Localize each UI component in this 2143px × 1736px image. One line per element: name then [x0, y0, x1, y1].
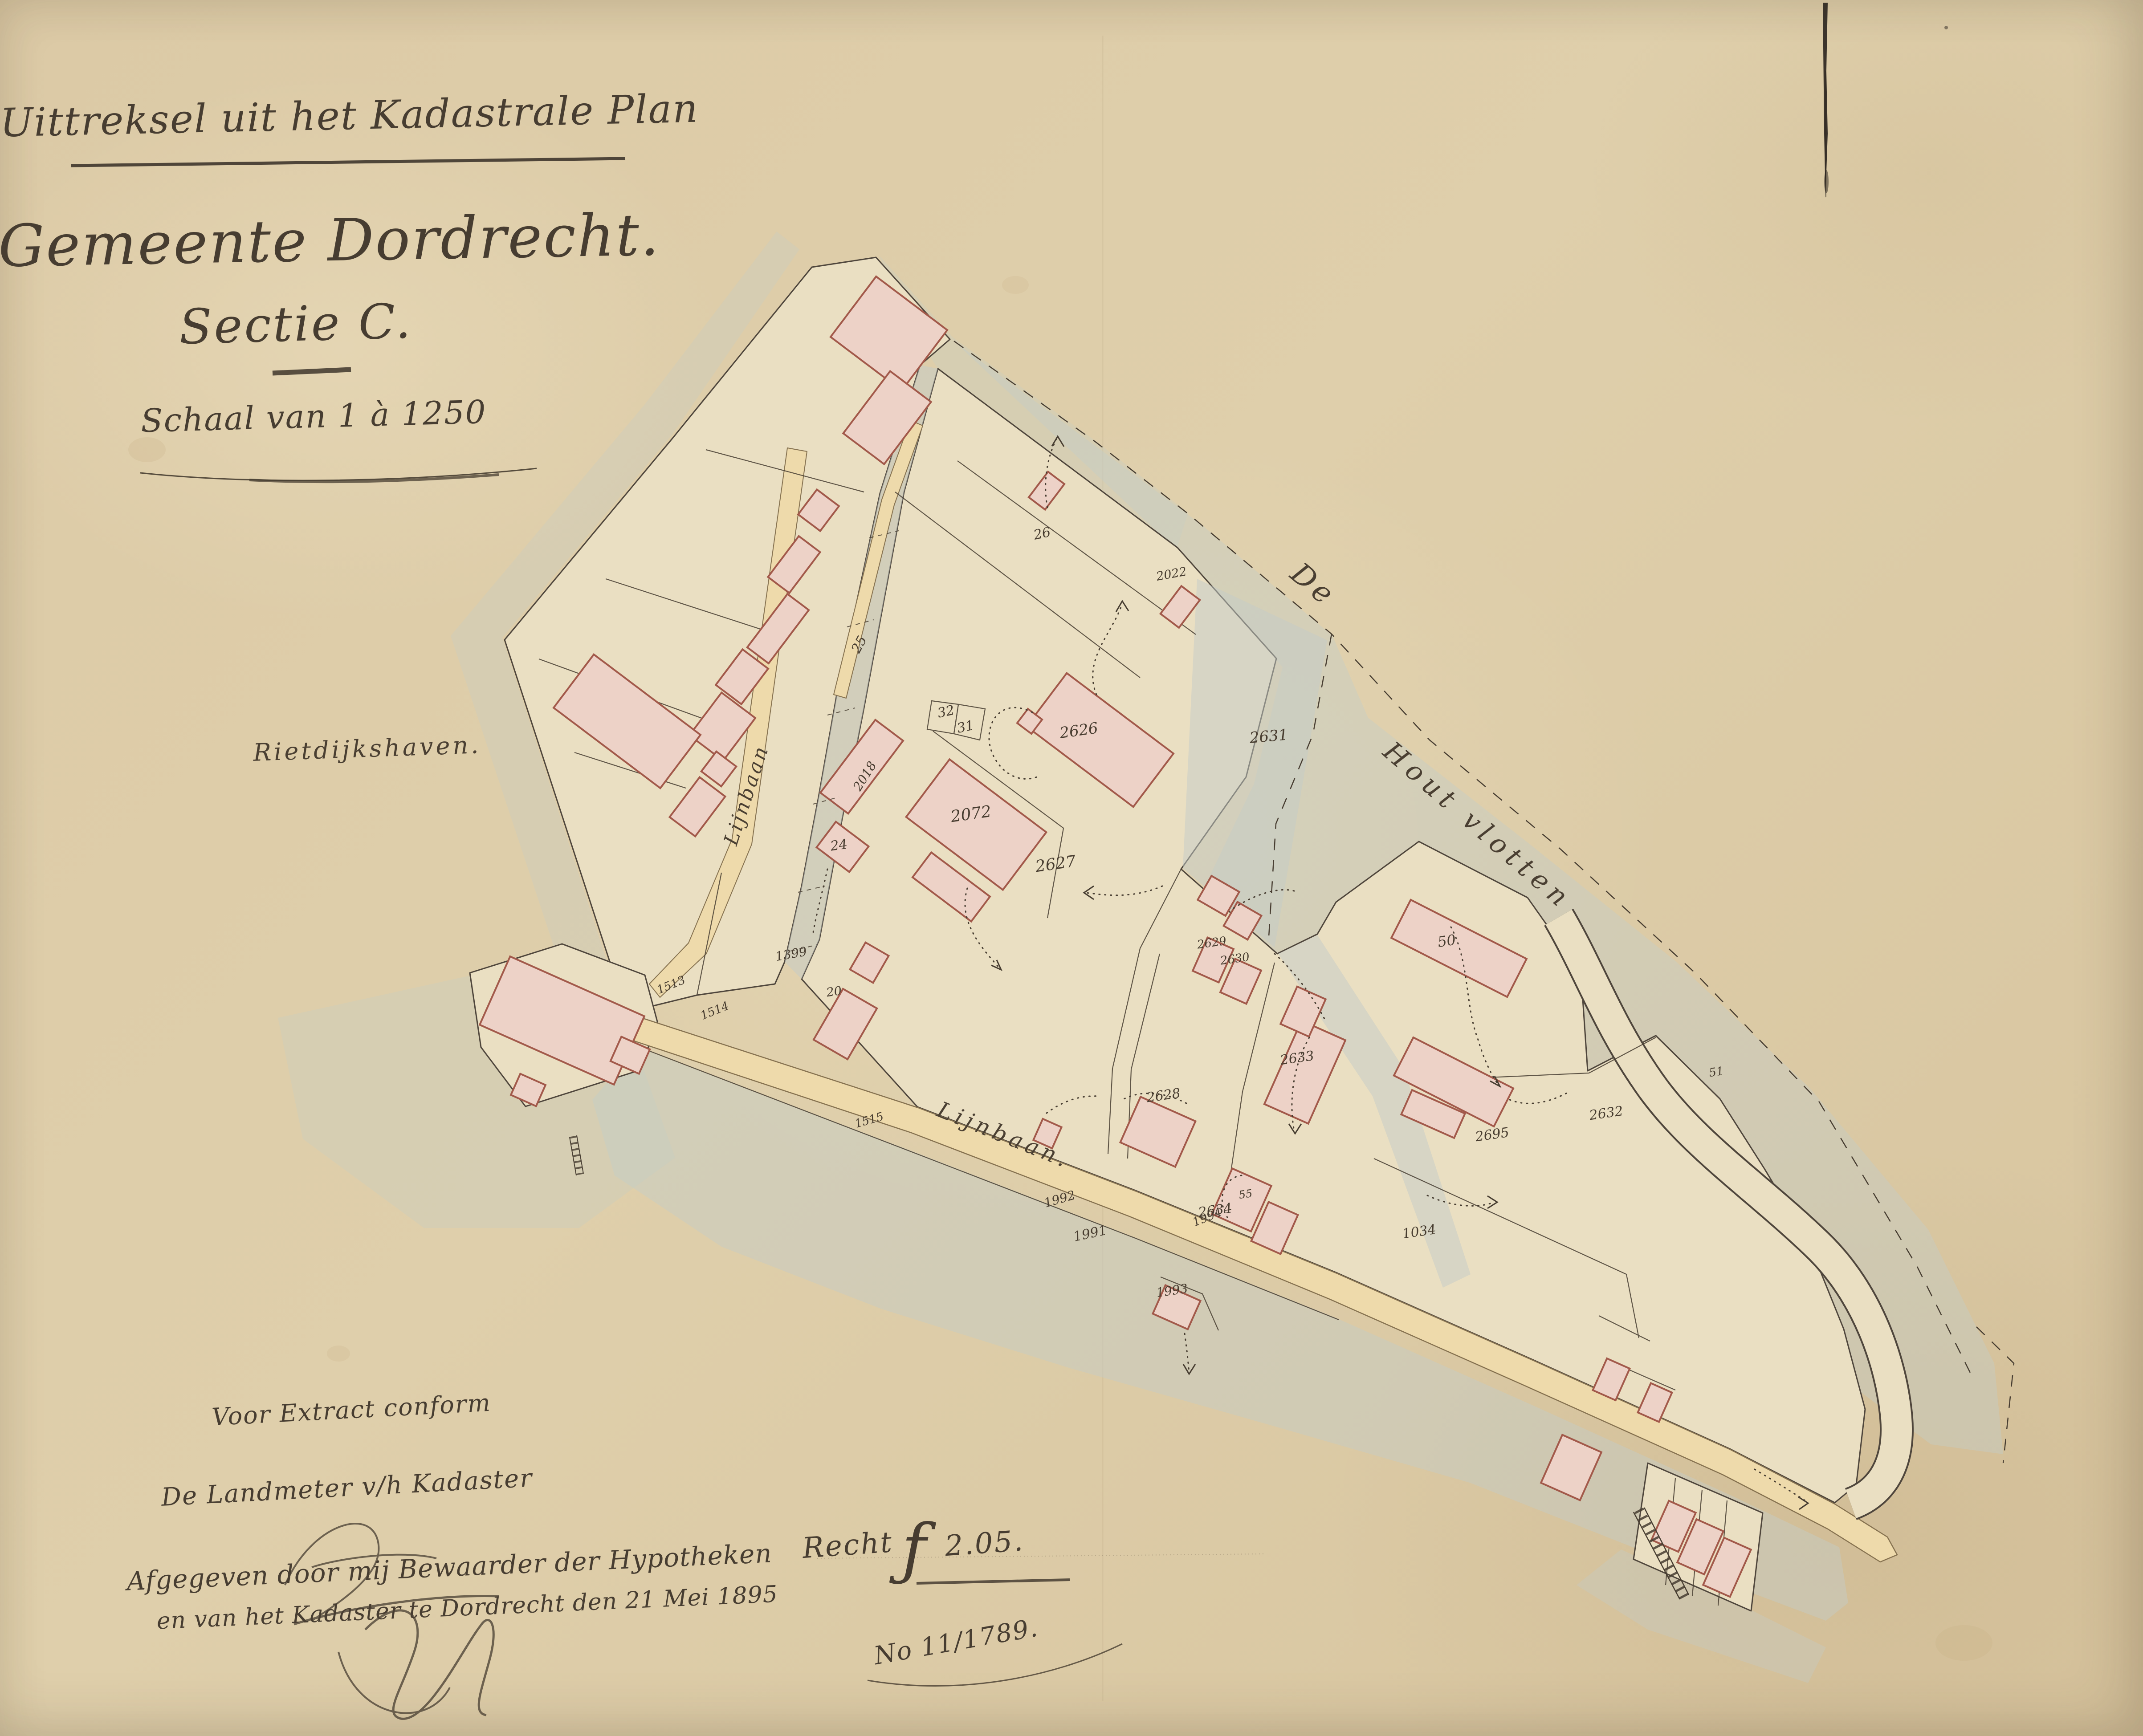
parcel-label: 20 [825, 984, 843, 1000]
parcel-label: 1992 [1043, 1187, 1077, 1210]
title-block: Uittreksel uit het Kadastrale Plan Gemee… [0, 85, 699, 482]
fee-and-number: Recht ƒ 2.05. No 11/1789. [801, 1510, 1265, 1686]
scale-flourish [140, 468, 537, 480]
scale-flourish-thick [249, 475, 499, 482]
municipality-title: Gemeente Dordrecht. [0, 201, 661, 280]
area-label: Rietdijkshaven. [252, 731, 481, 767]
sheet-title: Uittreksel uit het Kadastrale Plan [0, 85, 699, 146]
section-underline [273, 370, 351, 373]
parcel-label: 50 [1437, 931, 1457, 950]
parcel-label: 24 [829, 837, 848, 854]
document-number: No 11/1789. [871, 1613, 1041, 1671]
parcel-label: 1514 [699, 999, 731, 1023]
conform-line1: Voor Extract conform [211, 1389, 492, 1431]
ink-artifacts [1823, 3, 1948, 198]
scanned-cadastral-map-sheet: 2620222526262631201832312072242627201399… [0, 0, 2143, 1736]
parcel-label: 2631 [1248, 726, 1289, 747]
pen-streak [1823, 3, 1828, 198]
ink-dot [1944, 26, 1948, 29]
section-title: Sectie C. [179, 293, 413, 355]
fee-label: Recht [801, 1526, 894, 1565]
parcel-label: 51 [1708, 1065, 1724, 1080]
fee-amount: 2.05. [943, 1525, 1025, 1563]
title-underline [71, 159, 625, 166]
keeper-signature [338, 1610, 493, 1719]
certification-block: Voor Extract conform De Landmeter v/h Ka… [124, 1389, 778, 1719]
fee-underline [917, 1580, 1070, 1583]
fee-currency: ƒ [889, 1510, 936, 1588]
parcel-label: 55 [1238, 1187, 1253, 1201]
scale-title: Schaal van 1 à 1250 [140, 393, 487, 439]
map-canvas: 2620222526262631201832312072242627201399… [0, 0, 2143, 1736]
conform-line2: De Landmeter v/h Kadaster [160, 1464, 534, 1512]
